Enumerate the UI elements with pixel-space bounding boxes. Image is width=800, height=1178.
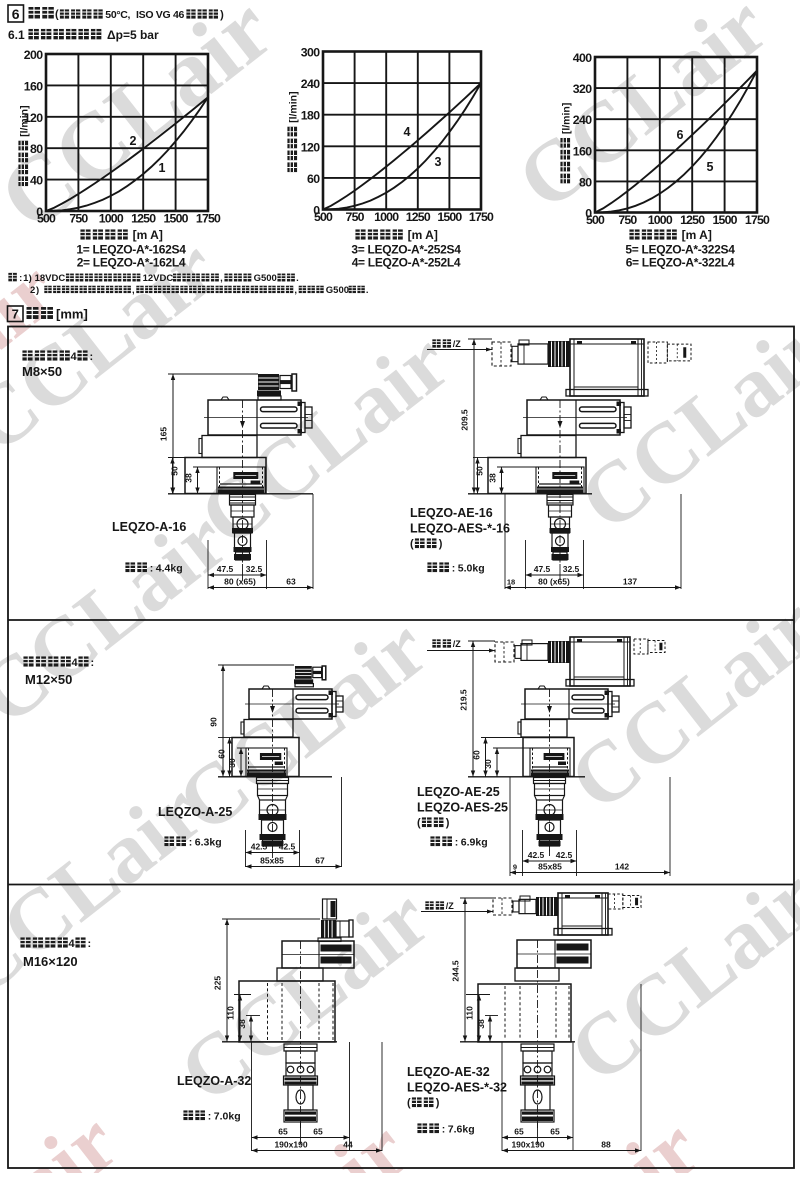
svg-text:32.5: 32.5	[563, 564, 580, 574]
svg-text:60: 60	[472, 750, 482, 760]
svg-text:LEQZO-AE-25: LEQZO-AE-25	[417, 785, 500, 799]
svg-text:12VDC: 12VDC	[143, 273, 174, 284]
svg-text:6.9kg: 6.9kg	[461, 837, 488, 849]
svg-text:38: 38	[476, 1019, 486, 1029]
svg-text:160: 160	[573, 144, 592, 158]
svg-text:LEQZO-AE-32: LEQZO-AE-32	[407, 1065, 490, 1079]
svg-text:60: 60	[307, 172, 320, 186]
svg-text:219.5: 219.5	[459, 689, 469, 711]
svg-text:209.5: 209.5	[460, 409, 470, 431]
svg-text:[l/min]: [l/min]	[561, 103, 573, 134]
svg-text:165: 165	[159, 427, 169, 441]
svg-text:CCLair: CCLair	[0, 763, 220, 1015]
svg-text:LEQZO-AE-16: LEQZO-AE-16	[410, 506, 493, 520]
svg-text:4: 4	[404, 125, 411, 139]
svg-text:47.5: 47.5	[217, 564, 234, 574]
svg-text:(: (	[410, 538, 414, 550]
svg-text:85x85: 85x85	[538, 862, 562, 872]
svg-text:1000: 1000	[99, 212, 124, 226]
svg-text:.: .	[296, 273, 299, 284]
svg-text:240: 240	[573, 113, 592, 127]
svg-text:50°C,: 50°C,	[105, 9, 130, 21]
svg-text:42.5: 42.5	[528, 850, 545, 860]
svg-text::: :	[452, 563, 456, 575]
svg-text:): )	[220, 9, 224, 21]
svg-text:CCLair: CCLair	[432, 1099, 717, 1173]
svg-text:3= LEQZO-A*-252S4: 3= LEQZO-A*-252S4	[351, 243, 461, 257]
svg-text:38: 38	[488, 473, 498, 483]
svg-text:(: (	[407, 1097, 411, 1109]
svg-text:110: 110	[465, 1006, 475, 1020]
svg-text:2: 2	[130, 134, 137, 148]
svg-text:4= LEQZO-A*-252L4: 4= LEQZO-A*-252L4	[352, 256, 461, 270]
svg-text:400: 400	[573, 51, 592, 65]
svg-text:2: 2	[30, 285, 35, 296]
svg-text:[l/min]: [l/min]	[288, 91, 300, 123]
svg-text:80 (x65): 80 (x65)	[538, 577, 570, 587]
svg-text:30: 30	[227, 758, 237, 768]
svg-text:LEQZO-AES-25: LEQZO-AES-25	[417, 801, 508, 815]
svg-text:6.3kg: 6.3kg	[195, 837, 222, 849]
svg-text::: :	[19, 273, 22, 284]
svg-text:18VDC: 18VDC	[35, 273, 66, 284]
svg-text:4: 4	[72, 657, 79, 669]
svg-text:1500: 1500	[164, 212, 189, 226]
svg-text:190x190: 190x190	[274, 1140, 307, 1150]
svg-text::: :	[208, 1111, 212, 1123]
svg-text:LEQZO-AES-*-16: LEQZO-AES-*-16	[410, 522, 510, 536]
svg-text:LEQZO-A-25: LEQZO-A-25	[158, 805, 232, 819]
svg-text:50: 50	[475, 466, 485, 476]
svg-text:1500: 1500	[713, 213, 738, 227]
svg-text::: :	[88, 938, 92, 950]
svg-text::: :	[455, 837, 459, 849]
svg-text:63: 63	[286, 577, 296, 587]
svg-text::: :	[150, 563, 154, 575]
svg-text:LEQZO-A-16: LEQZO-A-16	[112, 520, 186, 534]
svg-text:40: 40	[30, 174, 43, 188]
svg-text:44: 44	[343, 1140, 353, 1150]
svg-text:ISO VG 46: ISO VG 46	[136, 9, 185, 21]
svg-text:7.6kg: 7.6kg	[448, 1124, 475, 1136]
svg-text:): )	[29, 273, 32, 284]
svg-text:/Z: /Z	[453, 639, 462, 649]
svg-text:CCLair: CCLair	[552, 577, 800, 829]
svg-text:M16×120: M16×120	[23, 954, 78, 969]
svg-text:1750: 1750	[196, 212, 221, 226]
svg-text:G500: G500	[254, 273, 277, 284]
svg-text:240: 240	[301, 77, 320, 91]
svg-text:67: 67	[315, 856, 325, 866]
svg-text:38: 38	[184, 473, 194, 483]
svg-text::: :	[90, 351, 94, 363]
svg-text:65: 65	[514, 1127, 524, 1137]
svg-text:80: 80	[579, 175, 592, 189]
svg-text:1= LEQZO-A*-162S4: 1= LEQZO-A*-162S4	[76, 243, 186, 257]
svg-text:.: .	[366, 285, 369, 296]
svg-text:47.5: 47.5	[534, 564, 551, 574]
svg-text:42.5: 42.5	[279, 842, 296, 852]
svg-text:CCLair: CCLair	[552, 849, 800, 1101]
svg-text:500: 500	[586, 213, 605, 227]
svg-text:110: 110	[226, 1006, 236, 1020]
svg-text:80: 80	[30, 142, 43, 156]
svg-text:320: 320	[573, 82, 592, 96]
svg-text:500: 500	[37, 212, 56, 226]
svg-text:LEQZO-A-32: LEQZO-A-32	[177, 1074, 251, 1088]
svg-text:9: 9	[513, 863, 517, 872]
svg-text:65: 65	[278, 1127, 288, 1137]
svg-text:300: 300	[301, 46, 320, 60]
svg-text:80 (x65): 80 (x65)	[224, 577, 256, 587]
svg-text:M8×50: M8×50	[22, 364, 62, 379]
svg-text:32.5: 32.5	[246, 564, 263, 574]
svg-text:190x190: 190x190	[511, 1140, 544, 1150]
svg-text:(: (	[417, 817, 421, 829]
svg-text:1000: 1000	[374, 210, 399, 224]
svg-text:G500: G500	[326, 285, 349, 296]
svg-text:,: ,	[220, 273, 223, 284]
svg-text:142: 142	[615, 862, 629, 872]
svg-text:1750: 1750	[469, 210, 494, 224]
svg-text:1000: 1000	[648, 213, 673, 227]
svg-text::: :	[91, 657, 95, 669]
svg-text:): )	[36, 285, 39, 296]
svg-text:500: 500	[314, 210, 333, 224]
svg-text:4: 4	[71, 351, 78, 363]
svg-text:88: 88	[601, 1140, 611, 1150]
svg-text:137: 137	[623, 577, 637, 587]
svg-text:4: 4	[69, 938, 76, 950]
svg-text:): )	[439, 538, 443, 550]
svg-text:1500: 1500	[437, 210, 462, 224]
svg-text:42.5: 42.5	[251, 842, 268, 852]
svg-text:225: 225	[213, 976, 223, 990]
svg-text:6= LEQZO-A*-322L4: 6= LEQZO-A*-322L4	[626, 256, 735, 270]
svg-text:M12×50: M12×50	[25, 672, 72, 687]
svg-text:6: 6	[677, 128, 684, 142]
svg-text:(: (	[55, 9, 59, 21]
svg-text:5.0kg: 5.0kg	[458, 563, 485, 575]
svg-text:1250: 1250	[131, 212, 156, 226]
svg-text:4.4kg: 4.4kg	[156, 563, 183, 575]
svg-text:Δp=5 bar: Δp=5 bar	[107, 28, 159, 42]
svg-text:[m A]: [m A]	[408, 228, 438, 242]
svg-text:,: ,	[132, 285, 135, 296]
svg-text:750: 750	[618, 213, 637, 227]
svg-text::: :	[442, 1124, 446, 1136]
svg-text:120: 120	[301, 140, 320, 154]
svg-text::: :	[189, 837, 193, 849]
svg-text:LEQZO-AES-*-32: LEQZO-AES-*-32	[407, 1081, 507, 1095]
svg-text:65: 65	[550, 1127, 560, 1137]
svg-text:[l/min]: [l/min]	[19, 105, 31, 136]
svg-text:85x85: 85x85	[260, 856, 284, 866]
svg-text:1750: 1750	[745, 213, 770, 227]
svg-text:18: 18	[507, 578, 515, 587]
svg-text:6: 6	[12, 6, 20, 22]
svg-text:1: 1	[159, 161, 166, 175]
svg-text:50: 50	[170, 466, 180, 476]
svg-text:65: 65	[313, 1127, 323, 1137]
svg-text:90: 90	[209, 717, 219, 727]
svg-text:CCLair: CCLair	[0, 1093, 135, 1173]
svg-text:60: 60	[217, 749, 227, 759]
svg-text:[m A]: [m A]	[682, 228, 712, 242]
svg-text:200: 200	[24, 48, 43, 62]
svg-text:): )	[446, 817, 450, 829]
svg-text:750: 750	[346, 210, 365, 224]
svg-text:1250: 1250	[680, 213, 705, 227]
svg-text:5= LEQZO-A*-322S4: 5= LEQZO-A*-322S4	[625, 243, 735, 257]
svg-text:,: ,	[294, 285, 297, 296]
svg-text:2= LEQZO-A*-162L4: 2= LEQZO-A*-162L4	[77, 256, 186, 270]
svg-text:CCLair: CCLair	[500, 0, 785, 228]
svg-text:1250: 1250	[406, 210, 431, 224]
svg-text:[mm]: [mm]	[56, 307, 88, 322]
svg-text:244.5: 244.5	[451, 960, 461, 982]
svg-text:160: 160	[24, 79, 43, 93]
svg-text:[m A]: [m A]	[133, 228, 163, 242]
svg-text:6.1: 6.1	[8, 28, 25, 42]
svg-text:30: 30	[483, 759, 493, 769]
svg-text:180: 180	[301, 109, 320, 123]
svg-text:): )	[436, 1097, 440, 1109]
svg-text:/Z: /Z	[446, 901, 455, 911]
svg-text:3: 3	[435, 155, 442, 169]
svg-text:7.0kg: 7.0kg	[214, 1111, 241, 1123]
svg-text:750: 750	[69, 212, 88, 226]
svg-text:7: 7	[12, 307, 19, 322]
svg-text:38: 38	[237, 1019, 247, 1029]
svg-text:5: 5	[707, 160, 714, 174]
svg-text:/Z: /Z	[453, 339, 462, 349]
svg-text:42.5: 42.5	[556, 850, 573, 860]
